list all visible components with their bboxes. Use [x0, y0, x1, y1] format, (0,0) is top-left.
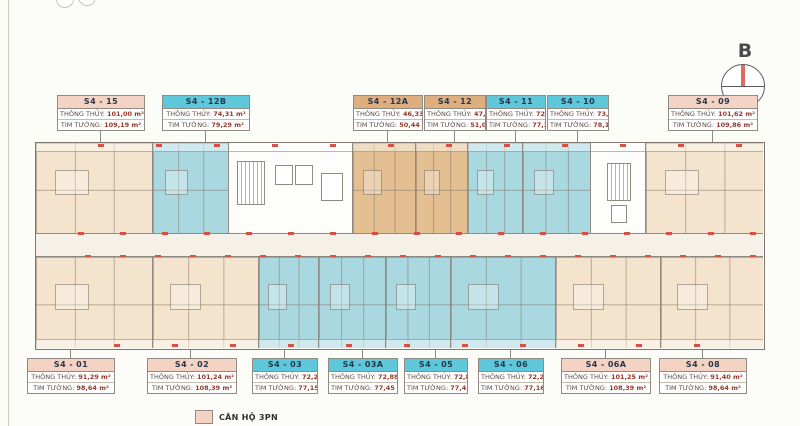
elevator-icon	[275, 165, 293, 185]
unit-label-s4-10: S4 - 10 THÔNG THỦY: 73,12 m² TIM TƯỜNG: …	[547, 95, 609, 131]
plan-unit-s4-11	[468, 143, 523, 233]
unit-label-s4-12b: S4 - 12B THÔNG THỦY: 74,31 m² TIM TƯỜNG:…	[162, 95, 250, 131]
net-label: THÔNG THỦY:	[671, 110, 716, 118]
unit-net-area: THÔNG THỦY: 72,09 m²	[487, 109, 545, 120]
unit-net-area: THÔNG THỦY: 101,24 m²	[148, 372, 236, 383]
unit-net-area: THÔNG THỦY: 72,25 m²	[479, 372, 543, 383]
net-label: THÔNG THỦY:	[356, 110, 401, 118]
unit-net-area: THÔNG THỦY: 46,33 m²	[354, 109, 422, 120]
gross-value: 77,45 m²	[374, 384, 397, 392]
net-value: 47,17 m²	[474, 110, 485, 118]
gross-label: TIM TƯỜNG:	[152, 384, 193, 392]
unit-net-area: THÔNG THỦY: 72,27 m²	[253, 372, 317, 383]
net-value: 101,24 m²	[197, 373, 234, 381]
unit-label-s4-08: S4 - 08 THÔNG THỦY: 91,40 m² TIM TƯỜNG: …	[659, 358, 747, 394]
net-value: 72,25 m²	[528, 373, 543, 381]
unit-code: S4 - 03	[253, 359, 317, 372]
net-value: 74,31 m²	[213, 110, 245, 118]
gross-label: TIM TƯỜNG:	[427, 121, 468, 129]
leader-line	[387, 130, 388, 142]
leader-line	[510, 350, 511, 358]
unit-gross-area: TIM TƯỜNG: 50,44 m²	[354, 120, 422, 130]
gross-value: 79,29 m²	[211, 121, 243, 129]
gross-value: 78,12 m²	[593, 121, 608, 129]
unit-code: S4 - 12A	[354, 96, 422, 109]
gross-value: 108,39 m²	[609, 384, 646, 392]
gross-value: 77,15 m²	[298, 384, 317, 392]
legend-3br-swatch	[195, 410, 213, 424]
gross-value: 108,39 m²	[195, 384, 232, 392]
unit-gross-area: TIM TƯỜNG: 77,45 m²	[329, 383, 397, 393]
net-value: 101,25 m²	[611, 373, 648, 381]
net-value: 72,88 m²	[454, 373, 467, 381]
unit-label-s4-12: S4 - 12 THÔNG THỦY: 47,17 m² TIM TƯỜNG: …	[424, 95, 486, 131]
unit-net-area: THÔNG THỦY: 47,17 m²	[425, 109, 485, 120]
plan-unit-s4-06a	[556, 257, 661, 348]
unit-gross-area: TIM TƯỜNG: 77,32 m²	[487, 120, 545, 130]
net-label: THÔNG THỦY:	[407, 373, 452, 381]
plan-unit-s4-06	[451, 257, 556, 348]
plan-unit-s4-12a	[353, 143, 416, 233]
leader-line	[515, 130, 516, 142]
unit-label-s4-15: S4 - 15 THÔNG THỦY: 101,00 m² TIM TƯỜNG:…	[57, 95, 145, 131]
unit-gross-area: TIM TƯỜNG: 79,29 m²	[163, 120, 249, 130]
unit-label-s4-06a: S4 - 06A THÔNG THỦY: 101,25 m² TIM TƯỜNG…	[561, 358, 651, 394]
unit-code: S4 - 01	[28, 359, 114, 372]
gross-label: TIM TƯỜNG:	[489, 121, 530, 129]
plan-top-band	[36, 143, 763, 233]
leader-line	[100, 130, 101, 142]
unit-net-area: THÔNG THỦY: 101,62 m²	[669, 109, 757, 120]
net-label: THÔNG THỦY:	[166, 110, 211, 118]
plan-bottom-band	[36, 257, 763, 348]
gross-value: 50,44 m²	[399, 121, 422, 129]
unit-label-s4-11: S4 - 11 THÔNG THỦY: 72,09 m² TIM TƯỜNG: …	[486, 95, 546, 131]
building-floorplan	[35, 142, 765, 350]
floorplan-page: B S4 - 15 THÔNG THỦY: 101,00 m² TIM TƯỜN…	[0, 0, 800, 426]
unit-code: S4 - 02	[148, 359, 236, 372]
unit-gross-area: TIM TƯỜNG: 98,64 m²	[660, 383, 746, 393]
compass-axis-line	[722, 86, 764, 87]
net-value: 91,29 m²	[78, 373, 110, 381]
plan-unit-s4-15	[36, 143, 153, 233]
gross-label: TIM TƯỜNG:	[255, 384, 296, 392]
elevator-icon	[611, 205, 627, 223]
unit-code: S4 - 12	[425, 96, 485, 109]
leader-line	[435, 350, 436, 358]
unit-net-area: THÔNG THỦY: 91,29 m²	[28, 372, 114, 383]
stairs-icon	[607, 163, 631, 201]
net-label: THÔNG THỦY:	[663, 373, 708, 381]
unit-net-area: THÔNG THỦY: 72,88 m²	[405, 372, 467, 383]
unit-code: S4 - 11	[487, 96, 545, 109]
unit-net-area: THÔNG THỦY: 72,88 m²	[329, 372, 397, 383]
gross-label: TIM TƯỜNG:	[550, 121, 591, 129]
unit-gross-area: TIM TƯỜNG: 77,16 m²	[479, 383, 543, 393]
unit-label-s4-03: S4 - 03 THÔNG THỦY: 72,27 m² TIM TƯỜNG: …	[252, 358, 318, 394]
unit-code: S4 - 03A	[329, 359, 397, 372]
unit-gross-area: TIM TƯỜNG: 108,39 m²	[148, 383, 236, 393]
net-value: 73,12 m²	[597, 110, 608, 118]
gross-label: TIM TƯỜNG:	[481, 384, 522, 392]
plan-core-secondary	[591, 143, 646, 233]
gross-label: TIM TƯỜNG:	[665, 384, 706, 392]
net-label: THÔNG THỦY:	[427, 110, 472, 118]
unit-gross-area: TIM TƯỜNG: 51,08 m²	[425, 120, 485, 130]
legend-3br-label: CĂN HỘ 3PN	[219, 413, 278, 422]
unit-code: S4 - 15	[58, 96, 144, 109]
gross-value: 77,45 m²	[450, 384, 467, 392]
unit-net-area: THÔNG THỦY: 73,12 m²	[548, 109, 608, 120]
unit-label-s4-01: S4 - 01 THÔNG THỦY: 91,29 m² TIM TƯỜNG: …	[27, 358, 115, 394]
net-label: THÔNG THỦY:	[564, 373, 609, 381]
leader-line	[605, 350, 606, 358]
plan-unit-s4-03	[259, 257, 319, 348]
gross-label: TIM TƯỜNG:	[168, 121, 209, 129]
door-markers-strip	[62, 344, 752, 347]
net-label: THÔNG THỦY:	[331, 373, 376, 381]
net-value: 46,33 m²	[403, 110, 422, 118]
gross-value: 109,19 m²	[104, 121, 141, 129]
gross-value: 77,32 m²	[532, 121, 545, 129]
net-value: 101,62 m²	[718, 110, 755, 118]
plan-unit-s4-01	[36, 257, 153, 348]
gross-label: TIM TƯỜNG:	[407, 384, 448, 392]
plan-unit-s4-08	[661, 257, 763, 348]
gross-value: 98,64 m²	[708, 384, 740, 392]
net-value: 72,09 m²	[536, 110, 545, 118]
plan-corridor	[36, 233, 763, 257]
plan-unit-s4-10	[523, 143, 591, 233]
gross-label: TIM TƯỜNG:	[673, 121, 714, 129]
net-value: 72,27 m²	[302, 373, 317, 381]
gross-label: TIM TƯỜNG:	[331, 384, 372, 392]
unit-gross-area: TIM TƯỜNG: 108,39 m²	[562, 383, 650, 393]
unit-code: S4 - 06A	[562, 359, 650, 372]
plan-unit-s4-03a	[319, 257, 386, 348]
unit-label-s4-09: S4 - 09 THÔNG THỦY: 101,62 m² TIM TƯỜNG:…	[668, 95, 758, 131]
net-label: THÔNG THỦY:	[481, 373, 526, 381]
leader-line	[70, 350, 71, 358]
elevator-icon	[295, 165, 313, 185]
net-label: THÔNG THỦY:	[60, 110, 105, 118]
unit-net-area: THÔNG THỦY: 101,25 m²	[562, 372, 650, 383]
stairs-icon	[237, 161, 265, 205]
unit-code: S4 - 06	[479, 359, 543, 372]
net-label: THÔNG THỦY:	[255, 373, 300, 381]
unit-net-area: THÔNG THỦY: 91,40 m²	[660, 372, 746, 383]
unit-label-s4-02: S4 - 02 THÔNG THỦY: 101,24 m² TIM TƯỜNG:…	[147, 358, 237, 394]
door-markers-strip	[46, 144, 753, 147]
net-label: THÔNG THỦY:	[550, 110, 595, 118]
unit-code: S4 - 09	[669, 96, 757, 109]
leader-line	[454, 130, 455, 142]
lobby-box	[321, 173, 343, 201]
unit-gross-area: TIM TƯỜNG: 78,12 m²	[548, 120, 608, 130]
leader-line	[362, 350, 363, 358]
unit-gross-area: TIM TƯỜNG: 77,45 m²	[405, 383, 467, 393]
gross-label: TIM TƯỜNG:	[61, 121, 102, 129]
grid-bubble-icon	[56, 0, 74, 8]
plan-unit-s4-12	[416, 143, 468, 233]
unit-code: S4 - 10	[548, 96, 608, 109]
unit-label-s4-03a: S4 - 03A THÔNG THỦY: 72,88 m² TIM TƯỜNG:…	[328, 358, 398, 394]
net-label: THÔNG THỦY:	[150, 373, 195, 381]
net-label: THÔNG THỦY:	[31, 373, 76, 381]
gross-value: 51,08 m²	[470, 121, 485, 129]
plan-unit-s4-02	[153, 257, 259, 348]
page-edge-line	[8, 0, 9, 426]
gross-value: 98,64 m²	[76, 384, 108, 392]
plan-unit-s4-12b	[153, 143, 229, 233]
gross-label: TIM TƯỜNG:	[33, 384, 74, 392]
unit-gross-area: TIM TƯỜNG: 109,19 m²	[58, 120, 144, 130]
unit-code: S4 - 05	[405, 359, 467, 372]
plan-unit-s4-09	[646, 143, 763, 233]
leader-line	[702, 350, 703, 358]
plan-core-stairs-lifts	[229, 143, 353, 233]
net-value: 72,88 m²	[378, 373, 397, 381]
unit-gross-area: TIM TƯỜNG: 77,15 m²	[253, 383, 317, 393]
net-label: THÔNG THỦY:	[489, 110, 534, 118]
leader-line	[205, 130, 206, 142]
legend-3br: CĂN HỘ 3PN	[195, 410, 278, 424]
grid-bubble-icon	[78, 0, 96, 6]
leader-line	[712, 130, 713, 142]
unit-gross-area: TIM TƯỜNG: 109,86 m²	[669, 120, 757, 130]
leader-line	[577, 130, 578, 142]
net-value: 101,00 m²	[107, 110, 144, 118]
compass-needle-icon	[741, 65, 745, 86]
unit-gross-area: TIM TƯỜNG: 98,64 m²	[28, 383, 114, 393]
unit-label-s4-12a: S4 - 12A THÔNG THỦY: 46,33 m² TIM TƯỜNG:…	[353, 95, 423, 131]
net-value: 91,40 m²	[710, 373, 742, 381]
compass-north-label: B	[728, 40, 762, 62]
gross-label: TIM TƯỜNG:	[566, 384, 607, 392]
unit-net-area: THÔNG THỦY: 101,00 m²	[58, 109, 144, 120]
unit-code: S4 - 12B	[163, 96, 249, 109]
gross-value: 77,16 m²	[524, 384, 543, 392]
gross-value: 109,86 m²	[716, 121, 753, 129]
unit-label-s4-05: S4 - 05 THÔNG THỦY: 72,88 m² TIM TƯỜNG: …	[404, 358, 468, 394]
leader-line	[284, 350, 285, 358]
gross-label: TIM TƯỜNG:	[356, 121, 397, 129]
plan-unit-s4-05	[386, 257, 451, 348]
unit-code: S4 - 08	[660, 359, 746, 372]
unit-net-area: THÔNG THỦY: 74,31 m²	[163, 109, 249, 120]
unit-label-s4-06: S4 - 06 THÔNG THỦY: 72,25 m² TIM TƯỜNG: …	[478, 358, 544, 394]
leader-line	[190, 350, 191, 358]
